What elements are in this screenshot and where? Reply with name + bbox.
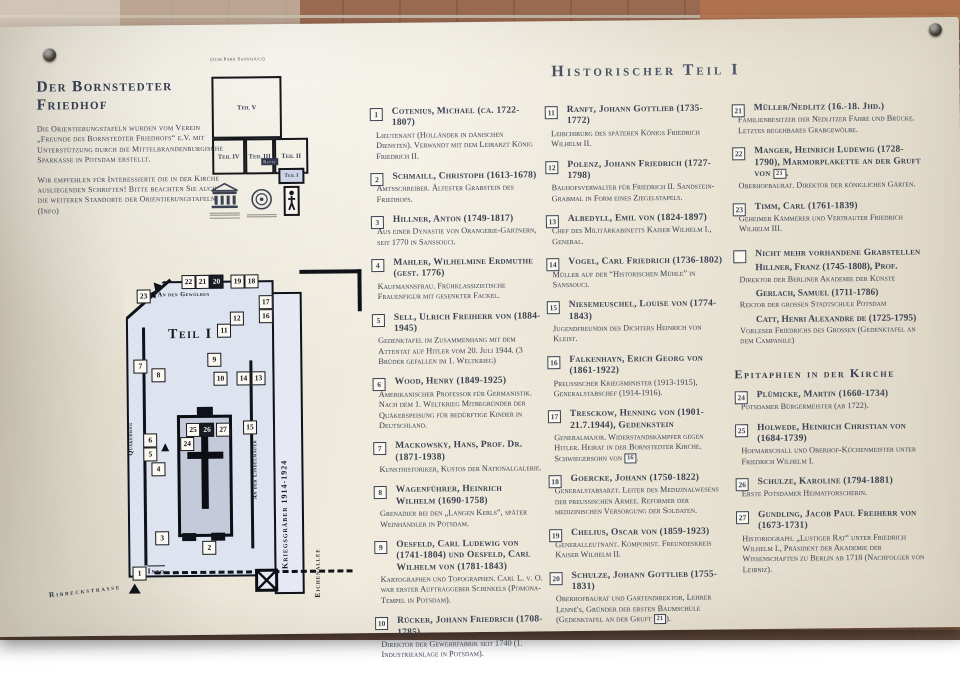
map-marker-3: 3 xyxy=(155,531,169,545)
church-tower xyxy=(197,407,213,416)
empty-number-box xyxy=(733,250,746,263)
grave-entry: 16Falkenhayn, Erich Georg von (1861-1922… xyxy=(547,353,727,399)
screw-top-right xyxy=(929,23,942,36)
entry-number-box: 26 xyxy=(736,478,749,491)
map-marker-6: 6 xyxy=(143,433,157,447)
entry-number-box: 6 xyxy=(373,378,386,391)
entry-name: Schmaill, Christoph (1613-1678) xyxy=(392,170,540,183)
entry-number-box: 15 xyxy=(547,301,560,314)
entry-number-box: 23 xyxy=(733,203,746,216)
entry-desc: Kaufmannsfrau. Frühklassizistische Fraue… xyxy=(378,280,542,302)
map-marker-27: 27 xyxy=(216,423,230,437)
entry-name: Sell, Ulrich Freiherr von (1884-1945) xyxy=(394,311,542,335)
person-desc: Direktor der Berliner Akademie der Künst… xyxy=(739,273,925,285)
map-marker-24: 24 xyxy=(180,437,194,451)
map-marker-25: 25 xyxy=(186,423,200,437)
grave-entry: 11Ranft, Johann Gottlieb (1735-1772)Leib… xyxy=(545,103,725,149)
entry-desc: Potsdamer Bürgermeister (ab 1722). xyxy=(741,400,927,412)
grave-entry: 24Plümicke, Martin (1660-1734)Potsdamer … xyxy=(735,388,927,413)
entry-desc: Oberhofbaurat und Gartendirektor, Lehrer… xyxy=(556,593,730,626)
map-marker-7: 7 xyxy=(133,359,147,373)
entry-number-box: 17 xyxy=(548,410,561,423)
map-marker-26: 26 xyxy=(200,423,214,437)
entry-desc: Generalmajor. Widerstandskämpfer gegen H… xyxy=(554,431,728,464)
grave-entry: 1Cotenius, Michael (ca. 1722-1807)Lieute… xyxy=(370,105,541,162)
map-marker-1: 1 xyxy=(132,566,146,580)
entry-name: Plümicke, Martin (1660-1734) xyxy=(757,388,927,401)
grave-entry: 10Rücker, Johann Friedrich (1708-1785)Di… xyxy=(375,614,545,660)
entry-desc: Historiograph. „Lustiger Rat“ unter Frie… xyxy=(742,532,928,575)
map-marker-18: 18 xyxy=(244,274,258,288)
entry-number-box: 13 xyxy=(546,215,559,228)
entry-number-box: 27 xyxy=(736,511,749,524)
logo-caption-lines xyxy=(247,212,277,219)
entry-number-box: 2 xyxy=(370,173,383,186)
grave-entry: 19Chelius, Oscar von (1859-1923)Generall… xyxy=(549,526,729,561)
column-1: 1Cotenius, Michael (ca. 1722-1807)Lieute… xyxy=(370,105,546,670)
map-marker-21: 21 xyxy=(195,275,209,289)
map-marker-8: 8 xyxy=(151,368,165,382)
intro-paragraph: Die Orientierungstafeln wurden vom Verei… xyxy=(37,123,227,167)
ref-number-box: 21 xyxy=(773,169,786,179)
overview-room-teil-v: Teil V xyxy=(211,76,282,139)
site-map: Teil I An den Gewölben Quäkerweg An der … xyxy=(111,263,375,644)
crossed-building xyxy=(255,568,279,597)
entry-name: Müller/Nedlitz (16.-18. Jhd.) xyxy=(754,101,924,114)
entry-desc: Familienbesitzer der Nedlitzer Fähre und… xyxy=(738,114,924,137)
entry-number-box: 16 xyxy=(547,356,560,369)
round-emblem-icon xyxy=(251,188,273,215)
entry-desc: Amtsschreiber. Ältester Grabstein des Fr… xyxy=(377,183,541,205)
entry-number-box: 22 xyxy=(732,147,745,160)
grave-entry: 21Müller/Nedlitz (16.-18. Jhd.)Familienb… xyxy=(732,101,924,136)
map-marker-4: 4 xyxy=(151,462,165,476)
left-header: Der Bornstedter Friedhof Die Orientierun… xyxy=(36,77,228,226)
grave-entry: 4Mahler, Wilhelmine Erdmuthe (gest. 1776… xyxy=(371,256,541,302)
entry-name: Wood, Henry (1849-1925) xyxy=(395,376,543,389)
entry-name: Oesfeld, Carl Ludewig von (1741-1804) un… xyxy=(396,538,544,574)
entry-number-box: 18 xyxy=(549,475,562,488)
entry-name: Chelius, Oscar von (1859-1923) xyxy=(571,526,729,539)
column-3: 21Müller/Nedlitz (16.-18. Jhd.)Familienb… xyxy=(732,101,929,585)
wall-segment xyxy=(357,269,361,311)
map-marker-5: 5 xyxy=(143,447,157,461)
map-marker-14: 14 xyxy=(236,371,250,385)
map-marker-16: 16 xyxy=(259,309,273,323)
grave-entry: 20Schulze, Johann Gottlieb (1755-1831)Ob… xyxy=(550,569,731,626)
entry-name: Holwede, Heinrich Christian von (1684-17… xyxy=(757,421,927,446)
grave-entry: 8Wagenführer, Heinrich Wilhelm (1690-175… xyxy=(374,484,544,530)
entry-desc: Gedenktafel im Zusammenhang mit dem Atte… xyxy=(378,335,542,368)
grave-entry: 5Sell, Ulrich Freiherr von (1884-1945)Ge… xyxy=(372,311,543,368)
map-marker-11: 11 xyxy=(217,324,231,338)
grave-entry: 27Gundling, Jacob Paul Freiherr von (167… xyxy=(736,508,929,575)
column-3-entries: 21Müller/Nedlitz (16.-18. Jhd.)Familienb… xyxy=(732,101,925,235)
entry-name: Timm, Carl (1761-1839) xyxy=(755,200,925,213)
map-marker-23: 23 xyxy=(137,289,151,303)
entry-number-box: 11 xyxy=(545,106,558,119)
person-desc: Vorleser Friedrichs des Großen (Gedenkta… xyxy=(740,324,926,347)
grave-entry: 3Hillner, Anton (1749-1817)Aus einer Dyn… xyxy=(371,213,541,248)
entry-desc: Generalleutnant. Komponist. Freundeskrei… xyxy=(555,538,729,561)
entry-desc: Direktor der Gewehrfabrik seit 1740 (1. … xyxy=(381,638,545,660)
eichenallee-street-label: Eichenallee xyxy=(312,502,322,598)
church-buttress xyxy=(182,533,196,541)
entry-name: Cotenius, Michael (ca. 1722-1807) xyxy=(392,105,540,129)
entry-name: Manger, Heinrich Ludewig (1728-1790), Ma… xyxy=(754,144,924,180)
entry-name: Hillner, Anton (1749-1817) xyxy=(393,213,541,226)
grave-entry: 18Goercke, Johann (1750-1822)Generalstab… xyxy=(549,472,729,517)
entry-desc: Kunsthistoriker, Kustos der Nationalgale… xyxy=(379,463,543,475)
grave-entry: 6Wood, Henry (1849-1925)Amerikanischer P… xyxy=(373,376,544,432)
entry-desc: Hofmarschall und Oberhof-Küchenmeister u… xyxy=(741,445,927,468)
entry-number-box: 20 xyxy=(550,572,563,585)
entry-name: Gundling, Jacob Paul Freiherr von (1673-… xyxy=(758,508,928,533)
you-are-here-box: Teil I xyxy=(278,168,304,184)
grave-entry: 22Manger, Heinrich Ludewig (1728-1790), … xyxy=(732,144,924,192)
entry-name: Rücker, Johann Friedrich (1708-1785) xyxy=(397,614,545,638)
kette-label: Kette xyxy=(261,158,278,165)
entry-desc: Grenadier bei den „Langen Kerls“, später… xyxy=(380,508,544,530)
entry-number-box: 10 xyxy=(375,617,388,630)
entry-desc: Bauhofsverwalter für Friedrich II. Sands… xyxy=(552,182,726,205)
map-marker-2: 2 xyxy=(202,541,216,555)
you-are-here-label: Teil I xyxy=(284,173,298,179)
ribbeckstrasse-street-label: Ribbeckstrasse xyxy=(48,582,121,599)
pale-brick xyxy=(120,0,300,26)
room-label: Teil V xyxy=(237,104,256,111)
entry-desc: Jugendfreundin des Dichters Heinrich von… xyxy=(553,322,727,345)
grave-entry: 15Niesemeuschel, Louise von (1774-1843)J… xyxy=(547,299,727,345)
missing-grave-person: Hillner, Franz (1745-1808), Prof.Direkto… xyxy=(739,261,925,285)
ref-number-box: 16 xyxy=(624,453,637,463)
entry-desc: Lieutenant (Holländer in dänischen Diens… xyxy=(376,129,540,162)
entry-name: Vogel, Carl Friedrich (1736-1802) xyxy=(568,256,726,269)
missing-grave-person: Gerlach, Samuel (1711-1786)Rektor der gr… xyxy=(740,287,926,311)
map-marker-10: 10 xyxy=(213,372,227,386)
church-cross xyxy=(201,433,209,509)
entry-name: Goercke, Johann (1750-1822) xyxy=(571,472,729,485)
entry-desc: Chef des Militärkabinetts Kaiser Wilhelm… xyxy=(552,225,726,248)
grave-entry: 7Mackowsky, Hans, Prof. Dr. (1871-1938)K… xyxy=(373,440,543,476)
entry-desc: Oberhofbaurat. Direktor der königlichen … xyxy=(738,180,924,192)
gewoelbe-street-label: An den Gewölben xyxy=(158,291,210,299)
entry-desc: Müller auf der “Historischen Mühle” in S… xyxy=(552,268,726,291)
church-cross xyxy=(187,452,223,459)
missing-grave-person: Catt, Henri Alexandre de (1725-1795)Vorl… xyxy=(740,313,926,347)
entry-desc: Preußischer Kriegsminister (1913-1915), … xyxy=(554,377,728,400)
entry-name: Falkenhayn, Erich Georg von (1861-1922) xyxy=(569,353,727,377)
map-marker-13: 13 xyxy=(251,371,265,385)
you-are-here-figure-box xyxy=(284,186,300,216)
logo-caption-lines xyxy=(210,210,240,219)
grave-entry: 12Polenz, Johann Friedrich (1727-1798)Ba… xyxy=(545,158,725,204)
entry-name: Wagenführer, Heinrich Wilhelm (1690-1758… xyxy=(396,484,544,508)
lindelmauer-street-label: An der Lindelmauer xyxy=(252,379,259,499)
note-paragraph: Wir empfehlen für Interessierte die in d… xyxy=(37,173,227,217)
overview-room-teil-iv: Teil IV xyxy=(212,138,245,174)
entry-number-box: 24 xyxy=(735,391,748,404)
entry-number-box: 14 xyxy=(546,258,559,271)
map-marker-12: 12 xyxy=(230,311,244,325)
grave-entry: 26Schulze, Karoline (1794-1881)Erste Pot… xyxy=(736,475,928,500)
entry-name: Schulze, Johann Gottlieb (1755-1831) xyxy=(572,569,730,593)
missing-graves-block: Nicht mehr vorhandene Grabstellen Hillne… xyxy=(733,247,926,347)
info-panel: Der Bornstedter Friedhof Die Orientierun… xyxy=(0,17,960,637)
entry-name: Tresckow, Henning von (1901-21.7.1944), … xyxy=(570,408,728,432)
epitaphs-entries: 24Plümicke, Martin (1660-1734)Potsdamer … xyxy=(735,388,929,575)
missing-graves-list: Hillner, Franz (1745-1808), Prof.Direkto… xyxy=(739,261,926,347)
room-label: Teil II xyxy=(281,152,301,159)
entry-name: Albedyll, Emil von (1824-1897) xyxy=(568,212,726,225)
wall-segment xyxy=(299,269,361,274)
entry-desc: Leibchirurg des späteren Königs Friedric… xyxy=(551,127,725,150)
entry-number-box: 1 xyxy=(370,108,383,121)
missing-graves-title: Nicht mehr vorhandene Grabstellen xyxy=(755,247,925,260)
church-buttress xyxy=(211,533,225,541)
map-marker-17: 17 xyxy=(259,295,273,309)
grave-entry: 9Oesfeld, Carl Ludewig von (1741-1804) u… xyxy=(374,538,545,606)
grave-entry: 14Vogel, Carl Friedrich (1736-1802)Mülle… xyxy=(546,256,726,291)
entry-desc: Amerikanischer Professor für Germanistik… xyxy=(379,388,543,431)
entry-name: Mahler, Wilhelmine Erdmuthe (gest. 1776) xyxy=(393,256,541,280)
map-marker-19: 19 xyxy=(230,274,244,288)
grave-entry: 13Albedyll, Emil von (1824-1897)Chef des… xyxy=(546,212,726,247)
entry-desc: Kartographen und Topographen. Carl L. v.… xyxy=(381,573,545,606)
path-arrow xyxy=(161,443,169,451)
entry-number-box: 25 xyxy=(735,424,748,437)
entry-name: Mackowsky, Hans, Prof. Dr. (1871-1938) xyxy=(395,440,543,464)
entry-name: Polenz, Johann Friedrich (1727-1798) xyxy=(567,158,725,182)
grave-entry: 23Timm, Carl (1761-1839)Geheimer Kämmere… xyxy=(733,200,925,235)
entrance-arrow xyxy=(129,584,141,594)
grave-entry: 25Holwede, Heinrich Christian von (1684-… xyxy=(735,421,927,468)
map-marker-22: 22 xyxy=(181,275,195,289)
entry-desc: Aus einer Dynastie von Orangerie-Gärtner… xyxy=(377,226,541,248)
panel-title: Der Bornstedter Friedhof xyxy=(36,77,226,115)
entry-number-box: 5 xyxy=(372,314,385,327)
unesco-temple-icon xyxy=(209,182,239,215)
entry-number-box: 8 xyxy=(374,486,387,499)
ref-number-box: 21 xyxy=(654,614,667,624)
entry-name: Niesemeuschel, Louise von (1774-1843) xyxy=(569,299,727,323)
epitaphs-title: Epitaphien in der Kirche xyxy=(734,365,926,382)
entry-number-box: 7 xyxy=(373,442,386,455)
entry-number-box: 19 xyxy=(549,529,562,542)
entry-number-box: 12 xyxy=(545,161,558,174)
screw-top-left xyxy=(43,48,56,61)
room-label: Teil IV xyxy=(218,153,240,160)
quaekerweg-street-label: Quäkerweg xyxy=(126,366,134,456)
entry-name: Ranft, Johann Gottlieb (1735-1772) xyxy=(567,103,725,127)
overview-room-teil-iii: Teil III xyxy=(245,138,274,174)
map-marker-20: 20 xyxy=(209,275,223,289)
info-label: Info xyxy=(147,566,165,575)
entry-number-box: 9 xyxy=(374,541,387,554)
entry-desc: Erste Potsdamer Heimatforscherin. xyxy=(742,488,928,500)
person-desc: Rektor der großen Stadtschule Potsdam xyxy=(740,299,926,311)
main-title: Historischer Teil I xyxy=(551,61,740,81)
overview-map-caption: (zum Park Sanssouci) xyxy=(210,56,265,63)
teil-1-label: Teil I xyxy=(168,327,213,343)
entry-number-box: 21 xyxy=(732,104,745,117)
entry-name: Schulze, Karoline (1794-1881) xyxy=(758,475,928,488)
map-marker-15: 15 xyxy=(243,420,257,434)
grave-entry: 2Schmaill, Christoph (1613-1678)Amtsschr… xyxy=(370,170,540,205)
entry-desc: Generalstabsarzt. Leiter des Medizinalwe… xyxy=(555,485,729,518)
entry-desc: Geheimer Kämmerer und Vertrauter Friedri… xyxy=(739,212,925,235)
entry-number-box: 4 xyxy=(371,259,384,272)
person-icon xyxy=(287,190,297,212)
map-marker-9: 9 xyxy=(207,353,221,367)
column-2: 11Ranft, Johann Gottlieb (1735-1772)Leib… xyxy=(545,103,731,635)
entry-number-box: 3 xyxy=(371,216,384,229)
grave-entry: 17Tresckow, Henning von (1901-21.7.1944)… xyxy=(548,408,729,465)
